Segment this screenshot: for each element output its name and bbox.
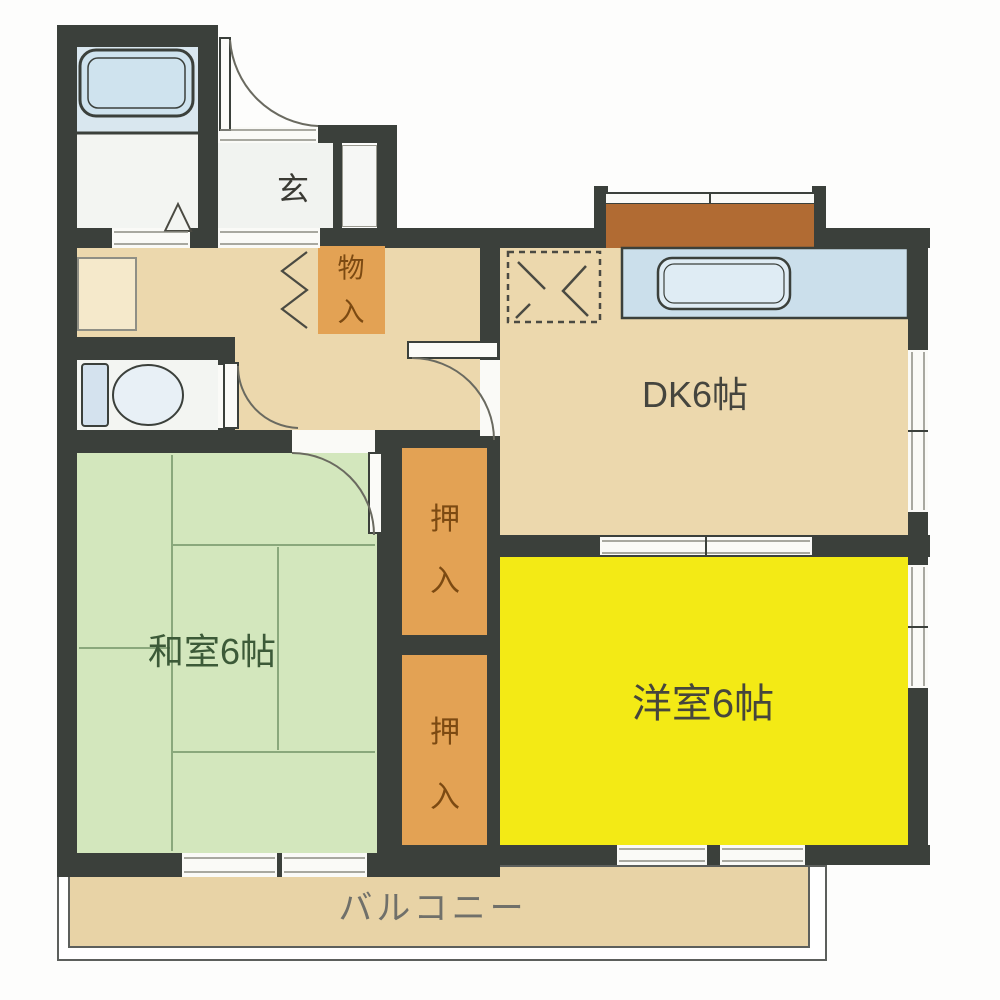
japanese-room-label: 和室6帖 [148, 623, 276, 675]
front-door-threshold [218, 127, 318, 143]
japanese-room-doorway [292, 430, 375, 453]
wall-bay-stub-right [812, 186, 826, 248]
wall-top-bath [57, 25, 218, 47]
wall-toilet-top [57, 337, 235, 360]
closet-lower-label-char1: 押 [430, 707, 460, 751]
dk-room-label: DK6帖 [642, 366, 748, 418]
dk-right-window [908, 350, 928, 512]
bathroom-floor [77, 47, 200, 134]
entrance-floor [218, 143, 333, 228]
wall-entrance-east [333, 143, 342, 232]
storage-label-char1: 物 [338, 247, 365, 286]
japanese-bottom-window-b [282, 853, 367, 877]
western-bottom-window-b [720, 845, 805, 865]
bay-window-counter [606, 204, 814, 248]
western-right-window [908, 565, 928, 688]
toilet-floor [77, 360, 218, 430]
entrance-label: 玄 [277, 164, 309, 210]
western-bottom-window-a [617, 845, 707, 865]
dk-western-sliding-opening [600, 537, 812, 555]
closet-lower-label-char2: 入 [430, 772, 460, 816]
floorplan: DK6帖 洋室6帖 和室6帖 玄 バルコニー 物 入 押 入 押 入 [0, 0, 1000, 1000]
japanese-bottom-window-a [182, 853, 277, 877]
balcony-label: バルコニー [338, 881, 527, 930]
bay-window-glass [606, 192, 814, 204]
wall-shoe-east [377, 143, 397, 232]
wall-dk-left [480, 228, 500, 360]
entrance-step [218, 228, 320, 248]
closet-upper-label-char2: 入 [430, 556, 460, 600]
wall-entrance-north-east [318, 125, 397, 143]
dk-doorway [480, 360, 500, 436]
shoe-cabinet [342, 145, 377, 227]
storage-label-char2: 入 [338, 291, 365, 330]
front-door-icon [220, 38, 318, 130]
wall-bath-entrance [198, 25, 218, 248]
closet-upper-interior [402, 448, 487, 635]
closet-upper-label-char1: 押 [430, 494, 460, 538]
washroom-floor [77, 134, 200, 228]
western-room-label: 洋室6帖 [632, 671, 774, 729]
toilet-doorway [218, 365, 235, 428]
washroom-threshold [112, 228, 190, 248]
